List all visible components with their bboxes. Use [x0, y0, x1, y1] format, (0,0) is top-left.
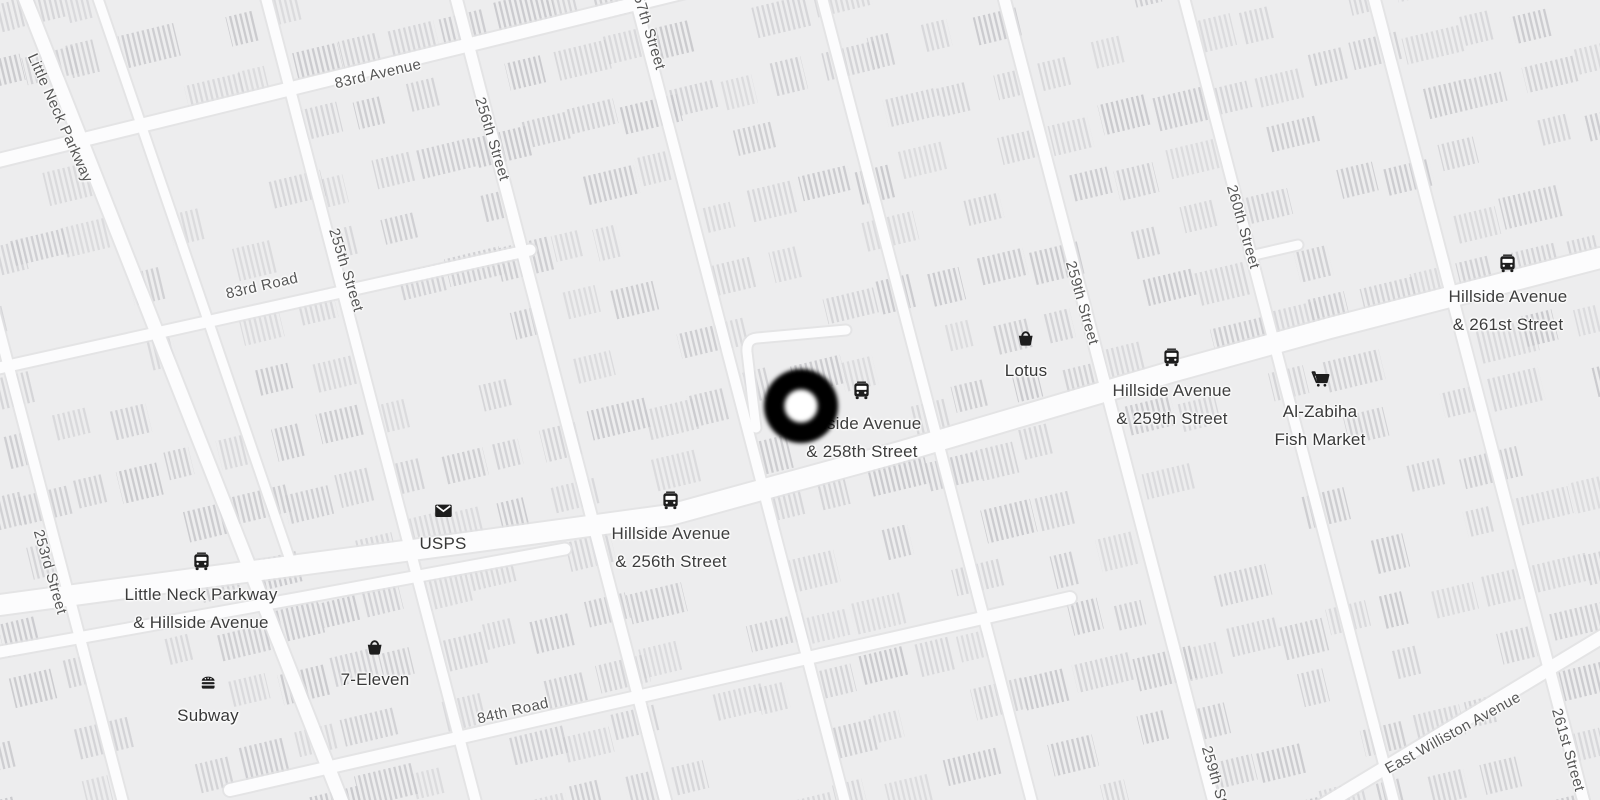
street-label-260th-street: 260th Street [1223, 183, 1263, 271]
street-label-261st-street: 261st Street [1548, 706, 1588, 793]
street-label-259th-street-south: 259th Street [1198, 744, 1238, 800]
street-label-255th-street: 255th Street [325, 226, 367, 314]
bus-icon [190, 551, 212, 573]
poi-label-line1: Al-Zabiha [1275, 398, 1366, 426]
poi-subway[interactable]: Subway [177, 672, 239, 730]
poi-label: Al-Zabiha Fish Market [1275, 398, 1366, 454]
street-label-256th-street: 256th Street [471, 95, 513, 183]
poi-label: USPS [419, 530, 466, 558]
burger-icon [197, 672, 219, 694]
poi-label: 7-Eleven [341, 666, 410, 694]
poi-label: Subway [177, 702, 239, 730]
bus-icon [660, 490, 682, 512]
street-label-83rd-avenue: 83rd Avenue [333, 56, 423, 92]
street-label-little-neck-parkway: Little Neck Parkway [24, 51, 96, 185]
street-label-253rd-street: 253rd Street [30, 528, 70, 617]
mail-icon [432, 500, 454, 522]
bus-icon [851, 380, 873, 402]
poi-label: Lotus [1005, 357, 1048, 385]
bus-stop-hillside-259th[interactable]: Hillside Avenue & 259th Street [1113, 347, 1232, 433]
poi-label-line2: Fish Market [1275, 426, 1366, 454]
poi-lotus[interactable]: Lotus [1005, 327, 1048, 385]
bus-stop-label: Hillside Avenue & 256th Street [612, 520, 731, 576]
location-marker[interactable] [762, 367, 840, 445]
street-label-259th-street: 259th Street [1062, 259, 1102, 347]
bus-stop-hillside-261st[interactable]: Hillside Avenue & 261st Street [1449, 253, 1568, 339]
bus-icon [1497, 253, 1519, 275]
poi-7-eleven[interactable]: 7-Eleven [341, 636, 410, 694]
street-label-257th-street: 257th Street [627, 0, 669, 72]
bus-stop-little-neck-parkway[interactable]: Little Neck Parkway & Hillside Avenue [124, 551, 277, 637]
street-label-83rd-road: 83rd Road [224, 269, 300, 302]
poi-al-zabiha-fish-market[interactable]: Al-Zabiha Fish Market [1275, 368, 1366, 454]
bus-icon [1161, 347, 1183, 369]
bus-stop-label: Little Neck Parkway & Hillside Avenue [124, 581, 277, 637]
poi-usps[interactable]: USPS [419, 500, 466, 558]
map-canvas[interactable]: Little Neck Parkway 83rd Avenue 256th St… [0, 0, 1600, 800]
bus-stop-label: Hillside Avenue & 259th Street [1113, 377, 1232, 433]
cart-icon [1309, 368, 1331, 390]
basket-icon [364, 636, 386, 658]
bus-stop-label: Hillside Avenue & 261st Street [1449, 283, 1568, 339]
bus-stop-hillside-256th[interactable]: Hillside Avenue & 256th Street [612, 490, 731, 576]
basket-icon [1015, 327, 1037, 349]
street-label-east-williston-avenue: East Williston Avenue [1382, 689, 1524, 778]
street-label-84th-road: 84th Road [476, 695, 551, 728]
